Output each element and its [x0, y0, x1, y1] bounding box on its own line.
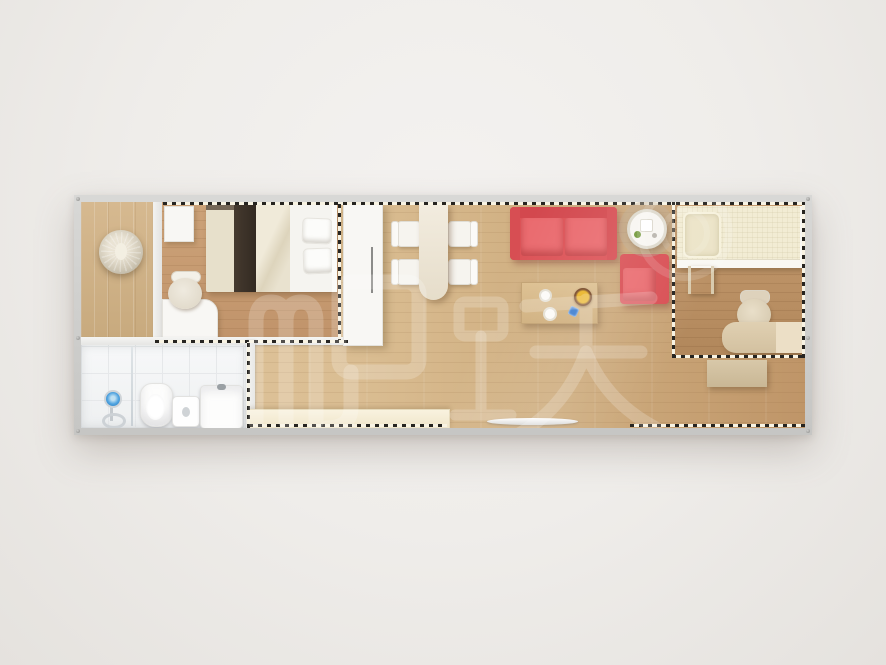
sofa-backrest: [510, 207, 617, 218]
module-line-bedroom-right: [338, 202, 341, 343]
storage-box: [164, 206, 194, 242]
dining-chair-4: [448, 259, 472, 285]
sofa-armrest-left: [510, 207, 520, 260]
desk-return: [776, 322, 805, 353]
white-wardrobe: [343, 204, 383, 346]
glass-divider: [131, 347, 133, 426]
duvet-fold: [256, 204, 290, 292]
office-desk: [722, 322, 805, 353]
module-line-bottom-right: [630, 424, 805, 427]
red-sofa: [510, 207, 617, 260]
bed-runner: [234, 204, 256, 292]
module-line-rbed-right: [802, 202, 805, 358]
frame-screw: [806, 429, 810, 433]
module-line-bath-right: [247, 342, 250, 428]
armchair-cushion: [623, 268, 656, 301]
red-armchair: [620, 254, 669, 304]
module-line-rbed-bottom: [672, 355, 805, 358]
plate: [539, 289, 552, 302]
module-line-top: [163, 202, 805, 205]
single-bed: [677, 206, 805, 268]
wash-basin: [172, 396, 200, 427]
fruit-bowl: [574, 288, 592, 306]
wardrobe-handle: [371, 247, 373, 293]
module-line-bedroom-bottom: [155, 340, 348, 343]
sofa-cushion-right: [565, 218, 607, 256]
plan-interior: 爬跃: [81, 202, 805, 428]
single-bed-pillow: [683, 212, 721, 258]
dining-chair-3: [448, 221, 472, 247]
tea-tray: [640, 219, 653, 232]
shower-base: [102, 413, 126, 428]
toilet: [140, 383, 173, 427]
blue-object: [568, 306, 580, 318]
frame-screw: [806, 336, 810, 340]
coffee-table: [521, 282, 598, 324]
floor-plan-render: 爬跃: [0, 0, 886, 665]
double-bed: [206, 204, 337, 292]
dining-chair-1: [397, 221, 421, 247]
door-threshold: [487, 418, 578, 425]
desk-chair: [168, 278, 202, 309]
dining-table: [419, 204, 448, 300]
dining-chair-2: [397, 259, 421, 285]
container-frame: 爬跃: [74, 195, 812, 435]
shower-head: [104, 390, 122, 408]
frame-screw: [806, 197, 810, 201]
cup-dot: [652, 233, 657, 238]
plant-dot: [634, 231, 641, 238]
round-side-table: [627, 209, 667, 249]
porch-right-wall: [153, 202, 162, 340]
sofa-cushion-left: [521, 218, 563, 256]
washing-machine: [200, 385, 243, 428]
bunk-ladder: [688, 266, 714, 294]
pillow: [302, 217, 333, 244]
frame-screw: [76, 429, 80, 433]
module-line-bottom-left: [249, 424, 447, 427]
pillow: [303, 247, 334, 274]
pendant-lamp: [99, 230, 143, 274]
bed-frame-right: [332, 204, 337, 292]
drawer-unit: [707, 360, 767, 387]
frame-screw: [76, 197, 80, 201]
cup: [543, 307, 557, 321]
sofa-armrest-right: [607, 207, 617, 260]
frame-screw: [76, 336, 80, 340]
